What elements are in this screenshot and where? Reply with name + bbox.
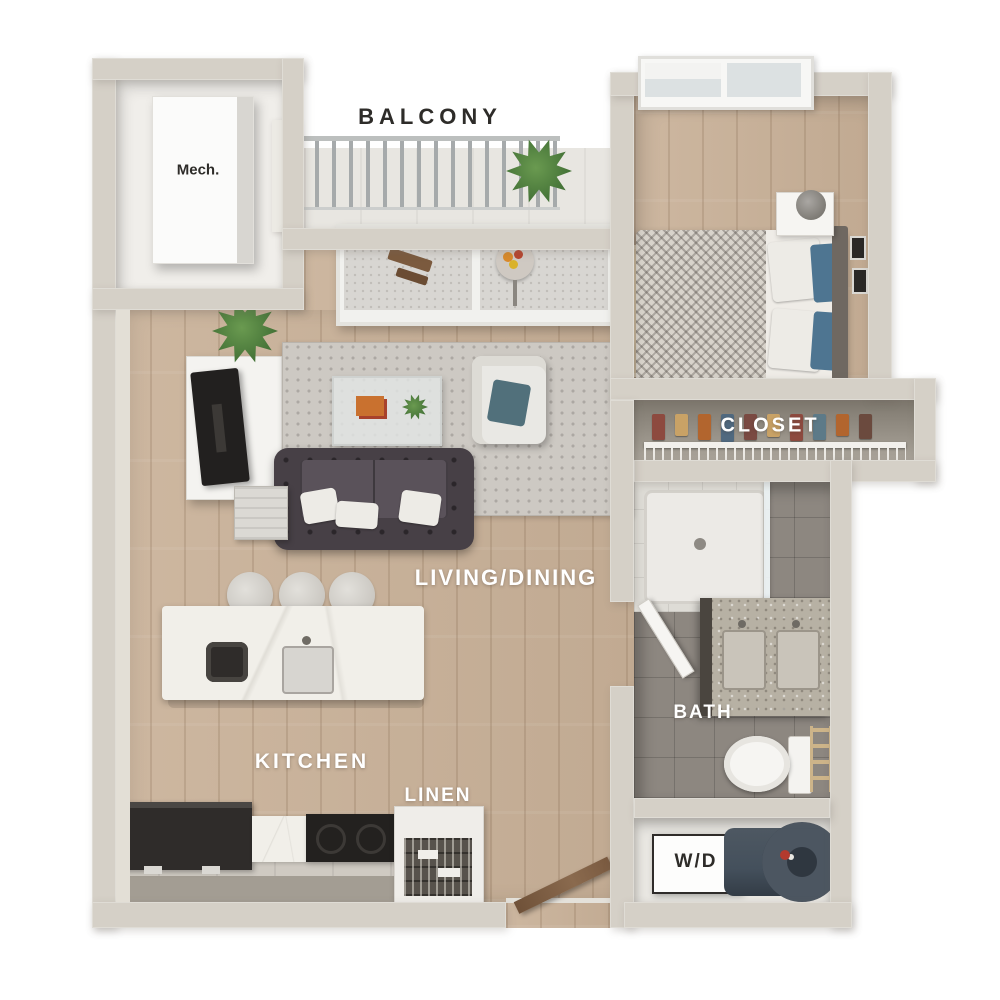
- island-sink: [282, 646, 334, 694]
- wall-left: [92, 58, 116, 928]
- counter-backsplash: [252, 816, 308, 862]
- refrigerator: [118, 802, 252, 870]
- wall-frame-1: [850, 236, 866, 260]
- wall-frame-3: [852, 268, 868, 294]
- toilet-bowl: [724, 736, 790, 792]
- island-pot: [206, 642, 248, 682]
- mechanical-unit: [152, 96, 254, 264]
- wall-closet-bottom: [634, 460, 936, 482]
- mech-label: Mech.: [177, 162, 220, 179]
- wall-left-inner-face: [116, 310, 130, 902]
- wall-closet-top: [610, 378, 936, 400]
- window-roller-shade: [645, 63, 721, 79]
- coffee-table-books: [356, 396, 384, 416]
- table-pedestal: [513, 280, 517, 306]
- armchair: [472, 356, 546, 444]
- faucet-2: [792, 620, 800, 628]
- fruit-yellow: [509, 260, 518, 269]
- headboard: [832, 226, 848, 386]
- balcony-label: BALCONY: [358, 104, 502, 130]
- wall-bath-laundry: [634, 798, 830, 818]
- armchair-pillow: [487, 379, 532, 427]
- wall-mech-bottom: [92, 288, 304, 310]
- side-table: [234, 486, 288, 540]
- wall-bath-left-upper: [610, 400, 634, 602]
- closet-shelf-wires: [644, 448, 906, 460]
- burner: [356, 824, 386, 854]
- tv-stand: [212, 404, 227, 453]
- vanity-cabinet-edge: [700, 598, 712, 716]
- fruit-red: [514, 250, 523, 259]
- hanging-clothes: [652, 414, 665, 440]
- range: [306, 814, 394, 862]
- bed-blanket: [636, 230, 766, 382]
- table-lamp: [796, 190, 826, 220]
- counter-front: [100, 876, 396, 904]
- wall-mech-right: [282, 58, 304, 310]
- wall-bath-right: [830, 460, 852, 928]
- sofa: [274, 448, 474, 550]
- wall-balcony-living: [282, 228, 634, 250]
- wall-bedroom-right: [868, 72, 892, 400]
- vanity-sink-2: [776, 630, 820, 690]
- living-dining-label: LIVING/DINING: [415, 565, 597, 591]
- water-heater-valve: [780, 850, 790, 860]
- faucet-1: [738, 620, 746, 628]
- hanging-clothes: [859, 414, 872, 439]
- linen-label: LINEN: [405, 785, 472, 807]
- bedroom-window: [638, 56, 814, 110]
- linen-wire-baskets: [404, 838, 472, 896]
- bath-vanity: [700, 598, 830, 716]
- shower-drain: [694, 538, 706, 550]
- wall-bath-left-lower: [610, 686, 634, 928]
- coffee-table-plant: [402, 394, 428, 420]
- mechanical-unit-side: [237, 97, 253, 263]
- basket-label-chip: [438, 868, 460, 877]
- basket-label-chip: [418, 850, 438, 859]
- washer-dryer-label: W/D: [675, 851, 718, 873]
- toilet-tank: [788, 736, 812, 794]
- sofa-pillow-1: [299, 487, 340, 525]
- window-pane: [727, 63, 801, 97]
- towel-ladder: [810, 726, 832, 792]
- hanging-clothes: [698, 414, 711, 440]
- refrigerator-foot: [202, 866, 220, 874]
- wall-bottom-left: [92, 902, 506, 928]
- shower-glass: [764, 482, 770, 612]
- bath-label: BATH: [673, 702, 732, 724]
- vanity-sink-1: [722, 630, 766, 690]
- island-faucet: [302, 636, 311, 645]
- kitchen-island: [162, 606, 424, 700]
- wall-mech-top: [92, 58, 304, 80]
- wall-bedroom-left: [610, 72, 634, 400]
- burner: [316, 824, 346, 854]
- kitchen-label: KITCHEN: [255, 750, 369, 774]
- closet-label: CLOSET: [720, 415, 819, 438]
- bed: [636, 230, 848, 382]
- hanging-clothes: [836, 414, 849, 436]
- sofa-pillow-2: [335, 501, 379, 530]
- wall-bottom-right: [624, 902, 852, 928]
- coffee-table: [332, 376, 442, 446]
- sofa-pillow-3: [398, 489, 442, 526]
- refrigerator-foot: [144, 866, 162, 874]
- hanging-clothes: [675, 414, 688, 436]
- floor-plan: Mech. CLOSET: [0, 0, 1000, 1000]
